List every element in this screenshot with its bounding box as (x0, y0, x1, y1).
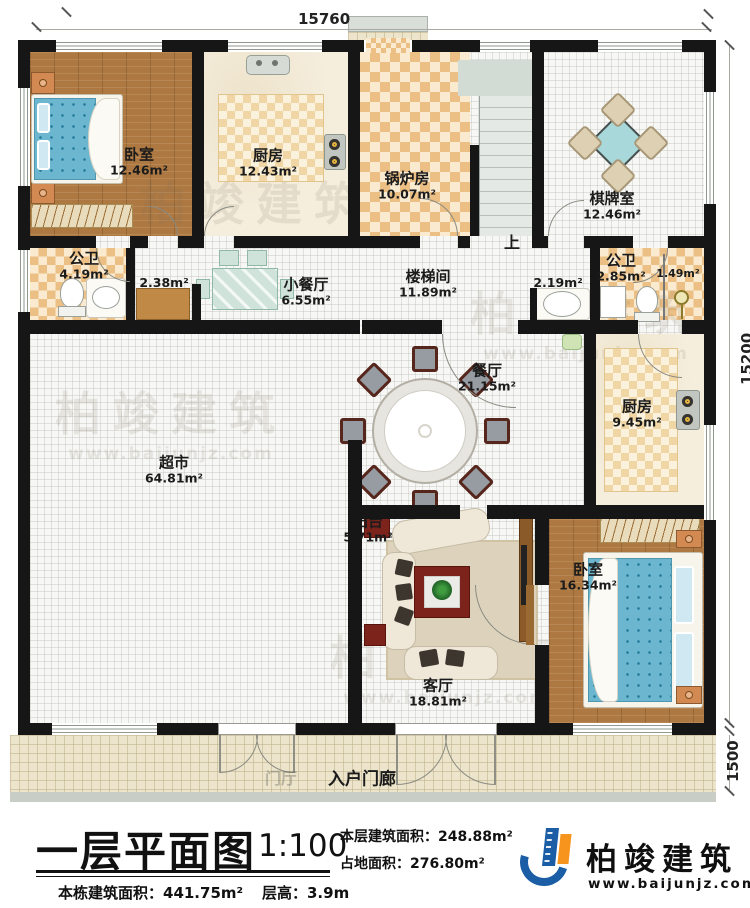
room-name: 门厅 (265, 770, 297, 788)
knob (685, 691, 693, 699)
nightstand (31, 72, 55, 94)
chair (219, 250, 239, 266)
wall (535, 519, 549, 585)
wall (518, 320, 638, 334)
window (704, 425, 716, 520)
room-label-kitchen1: 厨房 12.43m² (239, 148, 297, 179)
door-leaf (526, 585, 534, 645)
room-name: 卧室 (110, 147, 168, 164)
door-leaf (396, 735, 398, 785)
storey-height-text: 层高：3.9m (262, 882, 349, 903)
stairs-up-label: 上 (504, 234, 520, 252)
room-name: 小餐厅 (281, 277, 330, 294)
window (228, 40, 322, 52)
wash-basin (92, 286, 120, 309)
company-logo: 柏竣建筑 www.baijunjz.com (520, 824, 746, 904)
entry-door (395, 723, 497, 735)
dimension-tick (701, 22, 712, 33)
room-area: 12.43m² (239, 164, 297, 178)
wall (18, 320, 360, 334)
room-name: 公卫 (596, 253, 645, 270)
room-area: 12.46m² (583, 207, 641, 221)
throw-pillow (395, 559, 414, 578)
room-area: 11.89m² (399, 285, 457, 299)
building-area-text: 本栋建筑面积：441.75m² (58, 882, 243, 903)
burner (682, 396, 693, 407)
window (480, 40, 530, 52)
room-label-living: 客厅 18.81m² (409, 678, 467, 709)
nightstand (676, 686, 702, 704)
room-label-stairhall: 楼梯间 11.89m² (399, 269, 457, 300)
logo-url: www.baijunjz.com (588, 876, 750, 892)
wall (530, 288, 537, 320)
wall (470, 145, 479, 236)
wall (234, 236, 360, 248)
lazy-susan (418, 424, 432, 438)
washing-machine (600, 286, 626, 318)
wall (458, 236, 470, 248)
room-label-washnook: 2.19m² (533, 276, 582, 290)
wall (18, 236, 96, 248)
chair (247, 250, 267, 266)
wall (668, 236, 704, 248)
wall (487, 505, 716, 519)
room-label-dining: 餐厅 21.15m² (458, 363, 516, 394)
window (704, 92, 716, 204)
window (18, 250, 30, 312)
room-area: 18.81m² (409, 694, 467, 708)
chair (484, 418, 510, 444)
shower-stem (681, 305, 683, 319)
room-area: 2.85m² (596, 269, 645, 283)
window (573, 723, 672, 735)
wall (178, 236, 204, 248)
door-leaf (494, 735, 496, 785)
wall (348, 52, 360, 236)
room-label-bath2: 公卫 2.85m² (596, 253, 645, 284)
burner (682, 414, 693, 425)
wall (532, 236, 548, 248)
room-label-bath1: 公卫 4.19m² (59, 251, 108, 282)
watermark-text: 柏竣建筑 (55, 378, 287, 444)
shower-head (674, 290, 689, 305)
knob (39, 79, 47, 87)
door-mat (366, 38, 410, 53)
toilet (636, 286, 658, 314)
room-name: 棋牌室 (583, 191, 641, 208)
burner (329, 156, 340, 167)
door-leaf (219, 735, 221, 773)
land-area-text: 占地面积：276.80m² (340, 853, 485, 873)
entry-door (218, 723, 296, 735)
porch-edge-strip (10, 792, 716, 802)
plant (562, 334, 582, 350)
pillow (37, 140, 50, 170)
room-label-bedroom2: 卧室 16.34m² (559, 562, 617, 593)
dimension-right-main: 15200 (738, 333, 750, 385)
room-area: 9.45m² (612, 415, 661, 429)
room-area: 6.55m² (281, 293, 330, 307)
door-leaf (293, 735, 295, 773)
room-label-market: 超市 64.81m² (145, 455, 203, 486)
room-name: 超市 (145, 455, 203, 472)
wall (192, 284, 201, 320)
chair (412, 346, 438, 372)
pillow (674, 566, 694, 624)
wardrobe (31, 204, 133, 228)
storage-cabinet (136, 288, 190, 320)
room-area: 10.07m² (378, 187, 436, 201)
plant (432, 580, 452, 600)
wall (130, 236, 148, 248)
window (56, 40, 162, 52)
title-underline-thin (36, 876, 330, 877)
dimension-tick (61, 7, 72, 18)
room-area: 16.34m² (559, 578, 617, 592)
burner (329, 139, 340, 150)
wall (584, 334, 596, 505)
knob (39, 189, 47, 197)
throw-pillow (445, 649, 465, 667)
nightstand (31, 182, 55, 204)
dinette-table (212, 268, 278, 310)
wall (348, 440, 362, 723)
dimension-tick (31, 22, 42, 33)
room-label-shower: 1.49m² (656, 268, 699, 280)
room-label-boiler: 锅炉房 10.07m² (378, 171, 436, 202)
wall (360, 236, 420, 248)
wall (348, 505, 460, 519)
pillow (674, 632, 694, 690)
title-block: 一层平面图 1:100 本层建筑面积：248.88m² 占地面积：276.80m… (0, 810, 750, 908)
wall (535, 645, 549, 723)
pillow (37, 103, 50, 133)
room-name: 厨房 (239, 148, 297, 165)
floor-area-text: 本层建筑面积：248.88m² (340, 826, 513, 846)
room-name: 客厅 (409, 678, 467, 695)
wall (584, 236, 633, 248)
window (598, 40, 682, 52)
kitchen-sink (246, 55, 290, 75)
dimension-top: 15760 (298, 10, 350, 28)
watermark: 柏竣建筑 www.baijunjz.com (55, 378, 287, 464)
wall (532, 52, 544, 236)
toilet (60, 278, 84, 308)
dimension-line (36, 29, 712, 30)
faucet (272, 60, 278, 66)
room-name: 楼梯间 (399, 269, 457, 286)
floor-boiler-room (360, 52, 470, 236)
dimension-right-porch: 1500 (724, 740, 742, 782)
room-label-foyer-faint: 门厅 (265, 770, 297, 788)
room-area: 4.19m² (59, 267, 108, 281)
stair-landing (458, 60, 532, 96)
floor-plan-page: 柏竣建筑 柏竣建筑 www.baijunjz.com 柏竣建筑 www.baij… (0, 0, 750, 908)
logo-name: 柏竣建筑 (586, 834, 738, 879)
up-text: 上 (504, 234, 520, 252)
throw-pillow (395, 583, 413, 601)
room-area: 2.19m² (533, 276, 582, 290)
room-area: 2.38m² (139, 276, 188, 290)
dimension-tick (703, 9, 714, 20)
plan-scale: 1:100 (258, 828, 347, 864)
room-label-kitchen2: 厨房 9.45m² (612, 399, 661, 430)
throw-pillow (419, 649, 440, 668)
toilet-tank (58, 306, 86, 317)
room-area: 64.81m² (145, 471, 203, 485)
room-label-porch: 入户门廊 (328, 770, 396, 789)
side-cabinet (364, 624, 386, 646)
room-name: 卧室 (559, 562, 617, 579)
room-label-chess: 棋牌室 12.46m² (583, 191, 641, 222)
wall (362, 320, 442, 334)
nightstand (676, 530, 702, 548)
window (52, 723, 157, 735)
wall (192, 52, 204, 236)
room-name: 公卫 (59, 251, 108, 268)
room-area: 1.49m² (656, 268, 699, 280)
room-name: 锅炉房 (378, 171, 436, 188)
room-label-bedroom1: 卧室 12.46m² (110, 147, 168, 178)
logo-building-icon (557, 834, 571, 864)
room-label-closet: 2.38m² (139, 276, 188, 290)
faucet (256, 60, 262, 66)
room-area: 12.46m² (110, 163, 168, 177)
wash-basin (543, 291, 581, 317)
title-underline (36, 870, 330, 873)
knob (685, 535, 693, 543)
room-area: 21.15m² (458, 379, 516, 393)
room-label-dinette: 小餐厅 6.55m² (281, 277, 330, 308)
room-name: 餐厅 (458, 363, 516, 380)
room-name: 厨房 (612, 399, 661, 416)
wall (682, 320, 716, 334)
window (18, 88, 30, 186)
room-name: 入户门廊 (328, 770, 396, 789)
dimension-line (729, 45, 730, 725)
